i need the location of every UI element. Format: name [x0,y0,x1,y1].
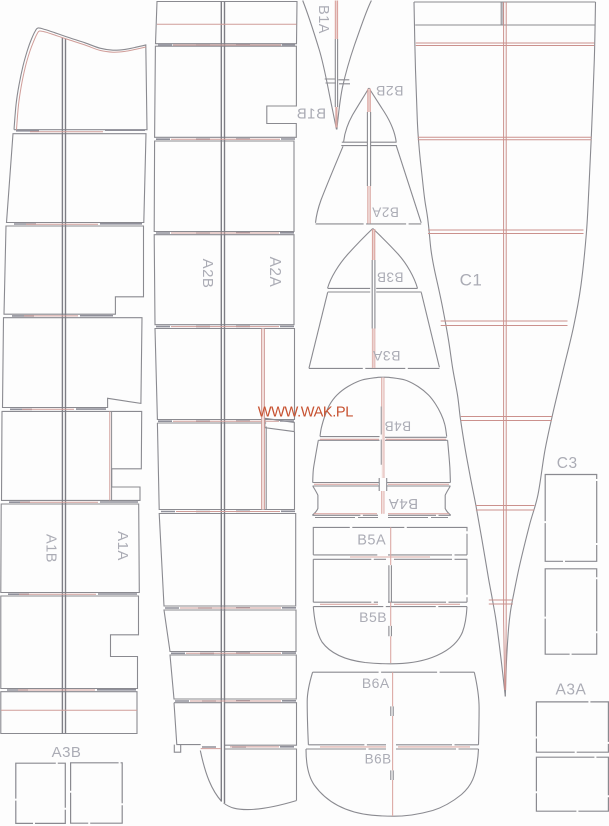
svg-text:B4A: B4A [388,495,418,512]
svg-text:B2A: B2A [372,204,399,219]
svg-text:C3: C3 [557,455,578,472]
svg-text:B1A: B1A [315,5,331,34]
svg-text:B4B: B4B [384,419,411,434]
svg-text:A2B: A2B [199,259,216,289]
svg-text:WWW.WAK.PL: WWW.WAK.PL [258,404,353,420]
svg-text:B3A: B3A [372,348,400,364]
svg-text:A1A: A1A [114,531,131,561]
svg-text:B5A: B5A [357,532,386,548]
svg-text:C1: C1 [460,271,483,290]
svg-text:B6B: B6B [365,751,392,766]
svg-text:B3B: B3B [376,270,403,285]
svg-text:B1B: B1B [296,106,326,123]
svg-text:B2B: B2B [376,83,404,99]
svg-text:A3A: A3A [555,681,586,698]
svg-text:B6A: B6A [362,675,390,691]
svg-text:A1B: A1B [43,534,59,563]
svg-text:A2A: A2A [266,257,283,288]
svg-text:B5B: B5B [359,609,387,625]
svg-text:A3B: A3B [52,744,82,761]
